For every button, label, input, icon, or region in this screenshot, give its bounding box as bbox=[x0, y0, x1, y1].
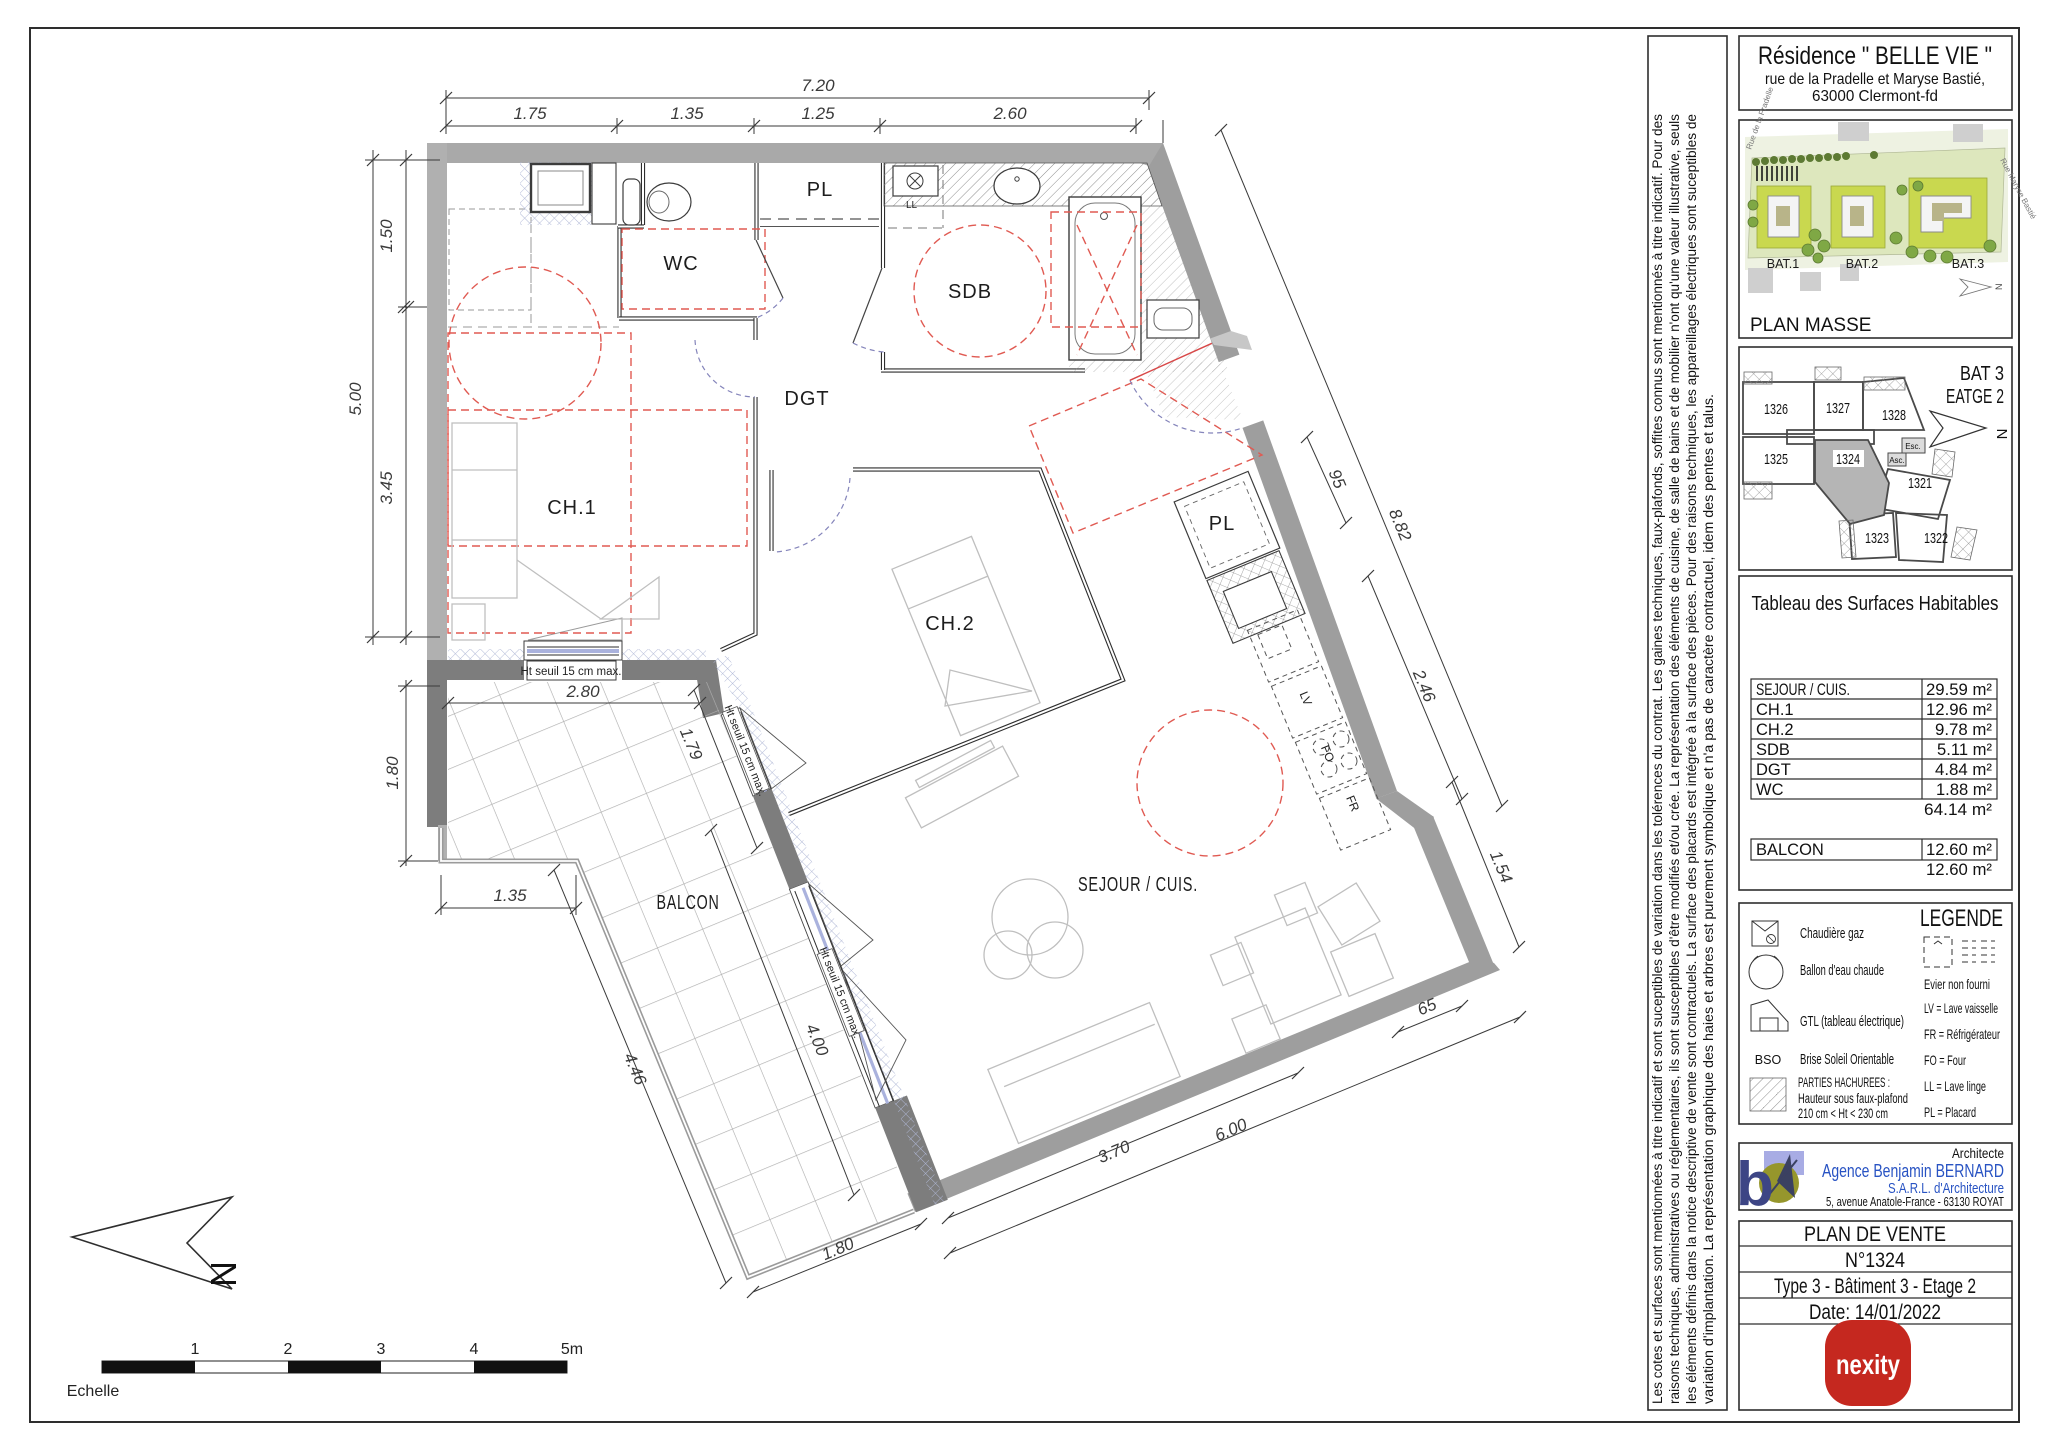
svg-text:Hauteur sous faux-plafond: Hauteur sous faux-plafond bbox=[1798, 1091, 1908, 1106]
svg-text:1.88 m²: 1.88 m² bbox=[1936, 781, 1993, 799]
svg-text:1325: 1325 bbox=[1764, 451, 1788, 468]
svg-text:5, avenue Anatole-France - 631: 5, avenue Anatole-France - 63130 ROYAT bbox=[1826, 1195, 2004, 1209]
svg-text:BALCON: BALCON bbox=[657, 892, 720, 914]
svg-text:LV = Lave vaisselle: LV = Lave vaisselle bbox=[1924, 1000, 1998, 1016]
svg-text:N°1324: N°1324 bbox=[1845, 1249, 1905, 1272]
svg-text:PL = Placard: PL = Placard bbox=[1924, 1104, 1976, 1120]
svg-text:Type 3 - Bâtiment 3 - Etage 2: Type 3 - Bâtiment 3 - Etage 2 bbox=[1774, 1275, 1976, 1298]
svg-text:CH.2: CH.2 bbox=[925, 613, 975, 635]
svg-text:PLAN DE VENTE: PLAN DE VENTE bbox=[1804, 1223, 1946, 1246]
svg-text:3.45: 3.45 bbox=[377, 471, 396, 505]
svg-text:5.00: 5.00 bbox=[346, 382, 365, 416]
svg-text:1326: 1326 bbox=[1764, 401, 1788, 418]
svg-text:N: N bbox=[1994, 429, 2011, 440]
svg-text:les éléments définis dans la n: les éléments définis dans la notice desc… bbox=[1684, 114, 1700, 1404]
svg-text:Evier non fourni: Evier non fourni bbox=[1924, 976, 1990, 992]
svg-text:Echelle: Echelle bbox=[67, 1383, 120, 1400]
svg-text:Résidence " BELLE VIE ": Résidence " BELLE VIE " bbox=[1758, 42, 1992, 70]
svg-text:1321: 1321 bbox=[1908, 475, 1932, 492]
svg-text:5m: 5m bbox=[561, 1341, 583, 1358]
svg-text:BSO: BSO bbox=[1755, 1053, 1782, 1067]
svg-text:SDB: SDB bbox=[948, 281, 992, 303]
svg-text:SEJOUR / CUIS.: SEJOUR / CUIS. bbox=[1756, 681, 1850, 699]
svg-text:LL = Lave linge: LL = Lave linge bbox=[1924, 1078, 1986, 1094]
svg-text:WC: WC bbox=[663, 253, 698, 275]
svg-text:1.25: 1.25 bbox=[801, 104, 835, 123]
svg-text:Ht seuil 15 cm max.: Ht seuil 15 cm max. bbox=[521, 666, 622, 678]
svg-text:nexity: nexity bbox=[1836, 1349, 1900, 1380]
svg-text:CH.1: CH.1 bbox=[547, 497, 597, 519]
svg-text:Asc.: Asc. bbox=[1889, 456, 1905, 465]
svg-text:9.78 m²: 9.78 m² bbox=[1935, 721, 1993, 739]
svg-text:PL: PL bbox=[807, 179, 833, 201]
svg-text:rue de la Pradelle et Maryse B: rue de la Pradelle et Maryse Bastié, bbox=[1765, 71, 1985, 88]
svg-text:1327: 1327 bbox=[1826, 400, 1850, 417]
svg-text:4: 4 bbox=[470, 1341, 479, 1358]
svg-text:SDB: SDB bbox=[1756, 741, 1790, 759]
svg-text:5.11 m²: 5.11 m² bbox=[1937, 741, 1993, 759]
svg-text:Architecte: Architecte bbox=[1952, 1145, 2004, 1161]
svg-text:FR = Réfrigérateur: FR = Réfrigérateur bbox=[1924, 1026, 2000, 1042]
svg-text:2.60: 2.60 bbox=[992, 104, 1027, 123]
svg-text:63000 Clermont-fd: 63000 Clermont-fd bbox=[1812, 88, 1938, 105]
svg-text:LL: LL bbox=[906, 200, 918, 211]
svg-text:CH.2: CH.2 bbox=[1756, 721, 1794, 739]
svg-text:DGT: DGT bbox=[784, 388, 829, 410]
svg-text:1: 1 bbox=[191, 1341, 200, 1358]
svg-text:Brise Soleil Orientable: Brise Soleil Orientable bbox=[1800, 1052, 1894, 1068]
svg-text:BALCON: BALCON bbox=[1756, 841, 1824, 859]
svg-text:1.75: 1.75 bbox=[513, 104, 547, 123]
svg-text:BAT.3: BAT.3 bbox=[1952, 257, 1984, 271]
svg-text:1.80: 1.80 bbox=[383, 756, 402, 790]
svg-text:29.59 m²: 29.59 m² bbox=[1926, 681, 1993, 699]
svg-text:2.80: 2.80 bbox=[565, 682, 600, 701]
svg-text:N: N bbox=[203, 1261, 244, 1287]
svg-text:SEJOUR / CUIS.: SEJOUR / CUIS. bbox=[1078, 874, 1198, 896]
svg-text:b: b bbox=[1736, 1150, 1774, 1219]
svg-text:BAT.2: BAT.2 bbox=[1846, 257, 1878, 271]
svg-text:64.14 m²: 64.14 m² bbox=[1924, 801, 1993, 819]
svg-text:EATGE 2: EATGE 2 bbox=[1946, 386, 2004, 408]
svg-text:1323: 1323 bbox=[1865, 530, 1889, 547]
svg-text:12.60 m²: 12.60 m² bbox=[1926, 861, 1993, 879]
svg-text:1.35: 1.35 bbox=[670, 104, 704, 123]
svg-text:1.35: 1.35 bbox=[493, 886, 527, 905]
svg-text:N: N bbox=[1994, 284, 2004, 291]
svg-text:Les cotes et surfaces sont men: Les cotes et surfaces sont mentionnées à… bbox=[1650, 114, 1666, 1404]
svg-text:Chaudière gaz: Chaudière gaz bbox=[1800, 926, 1864, 942]
svg-text:CH.1: CH.1 bbox=[1756, 701, 1794, 719]
svg-text:1324: 1324 bbox=[1836, 451, 1860, 468]
svg-text:BAT 3: BAT 3 bbox=[1960, 363, 2004, 385]
svg-text:variation d'implantation. La r: variation d'implantation. La représentat… bbox=[1701, 394, 1717, 1404]
svg-text:PL: PL bbox=[1209, 513, 1235, 535]
svg-text:4.84 m²: 4.84 m² bbox=[1935, 761, 1993, 779]
svg-text:Ballon d'eau chaude: Ballon d'eau chaude bbox=[1800, 963, 1884, 979]
svg-text:DGT: DGT bbox=[1756, 761, 1791, 779]
svg-text:3: 3 bbox=[377, 1341, 386, 1358]
svg-text:210 cm < Ht < 230 cm: 210 cm < Ht < 230 cm bbox=[1798, 1106, 1888, 1121]
svg-text:12.60 m²: 12.60 m² bbox=[1926, 841, 1993, 859]
svg-text:7.20: 7.20 bbox=[801, 76, 835, 95]
svg-text:PARTIES HACHUREES :: PARTIES HACHUREES : bbox=[1798, 1075, 1890, 1090]
svg-text:LEGENDE: LEGENDE bbox=[1920, 905, 2003, 932]
svg-text:BAT.1: BAT.1 bbox=[1767, 257, 1799, 271]
svg-text:12.96 m²: 12.96 m² bbox=[1926, 701, 1993, 719]
svg-text:Agence Benjamin BERNARD: Agence Benjamin BERNARD bbox=[1822, 1161, 2004, 1181]
svg-text:1.50: 1.50 bbox=[377, 219, 396, 253]
svg-text:WC: WC bbox=[1756, 781, 1784, 799]
svg-text:PLAN MASSE: PLAN MASSE bbox=[1750, 315, 1871, 336]
svg-text:raisons techniques, administra: raisons techniques, administratives ou r… bbox=[1667, 114, 1683, 1404]
svg-text:FO = Four: FO = Four bbox=[1924, 1052, 1966, 1068]
svg-text:GTL (tableau électrique): GTL (tableau électrique) bbox=[1800, 1014, 1904, 1030]
svg-text:2: 2 bbox=[284, 1341, 293, 1358]
svg-text:Esc.: Esc. bbox=[1905, 442, 1921, 451]
svg-text:Tableau des Surfaces Habitable: Tableau des Surfaces Habitables bbox=[1752, 592, 1999, 615]
svg-text:1322: 1322 bbox=[1924, 530, 1948, 547]
svg-text:1328: 1328 bbox=[1882, 407, 1906, 424]
